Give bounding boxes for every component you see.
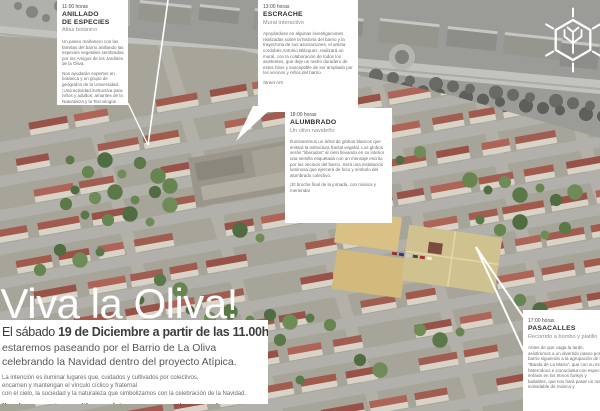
date-bold: 19 de Diciembre a partir de las 11.00h xyxy=(58,325,268,339)
event-time: 11:00 horas xyxy=(62,4,124,10)
event-callout-pasacalles: 17:00 horas PASACALLES Recorrido a bombo… xyxy=(523,310,600,411)
info-panel: El sábado 19 de Diciembre a partir de la… xyxy=(0,320,268,404)
fine-print: La intención es iluminar lugares que, cu… xyxy=(2,374,268,398)
closing-line: Iluminar para transmitir su relato, su c… xyxy=(2,402,268,404)
event-paragraph: Iluminaremos un árbol de globos blancos … xyxy=(290,139,388,178)
event-title: ANILLADO DE ESPECIES xyxy=(62,11,124,26)
event-description: Antes de que caiga la tarde, asistiremos… xyxy=(528,345,600,390)
intro-line: celebrando la Navidad dentro del proyect… xyxy=(2,356,268,370)
event-callout-escrache: 13:00 horas ESCRACHE Mural interactivo A… xyxy=(258,0,358,112)
event-callout-alumbrado: 18:00 horas ALUMBRADO Un olivo navideño … xyxy=(285,108,392,223)
event-subtitle: Atlas botánico xyxy=(62,27,124,34)
fine-print-line: encarnen y mantengan el vínculo cíclico … xyxy=(2,382,268,390)
info-panel-text: El sábado 19 de Diciembre a partir de la… xyxy=(2,325,268,404)
hexagon-tree-logo xyxy=(540,2,600,80)
event-paragraph: Antes de que caiga la tarde, asistiremos… xyxy=(528,345,600,390)
intro-line: estaremos paseando por el Barrio de La O… xyxy=(2,342,268,356)
event-paragraph: Apoyándose en algunas investigaciones re… xyxy=(263,31,354,76)
event-description: Apoyándose en algunas investigaciones re… xyxy=(263,31,354,85)
event-date-line: El sábado 19 de Diciembre a partir de la… xyxy=(2,325,268,340)
event-title: ESCRACHE xyxy=(263,11,354,19)
event-subtitle: Recorrido a bombo y platillo xyxy=(528,334,600,341)
event-title: PASACALLES xyxy=(528,325,600,333)
event-subtitle: Un olivo navideño xyxy=(290,128,388,135)
event-time: 17:00 horas xyxy=(528,318,600,324)
event-callout-anillado: 11:00 horas ANILLADO DE ESPECIES Atlas b… xyxy=(57,0,128,105)
date-prefix: El sábado xyxy=(2,325,58,339)
event-paragraph: Un paseo mañanero con las familias del b… xyxy=(62,39,124,67)
event-paragraph: Street Art! xyxy=(263,80,354,86)
poster: 11:00 horas ANILLADO DE ESPECIES Atlas b… xyxy=(0,0,600,411)
event-title: ALUMBRADO xyxy=(290,119,388,127)
fine-print-line: La intención es iluminar lugares que, cu… xyxy=(2,374,268,382)
poster-title: ¡Viva la Oliva! xyxy=(0,283,238,325)
event-time: 18:00 horas xyxy=(290,112,388,118)
logo-tree-icon xyxy=(565,28,582,54)
event-subtitle: Mural interactivo xyxy=(263,20,354,27)
event-paragraph: ¡El broche final de la jornada, con músi… xyxy=(290,182,388,193)
event-description: Un paseo mañanero con las familias del b… xyxy=(62,39,124,104)
event-time: 13:00 horas xyxy=(263,4,354,10)
fine-print-line: con el cielo, la sociedad y la naturalez… xyxy=(2,390,268,398)
event-paragraph: Nos ayudarán expertos en botánica y un g… xyxy=(62,71,124,104)
event-description: Iluminaremos un árbol de globos blancos … xyxy=(290,139,388,193)
